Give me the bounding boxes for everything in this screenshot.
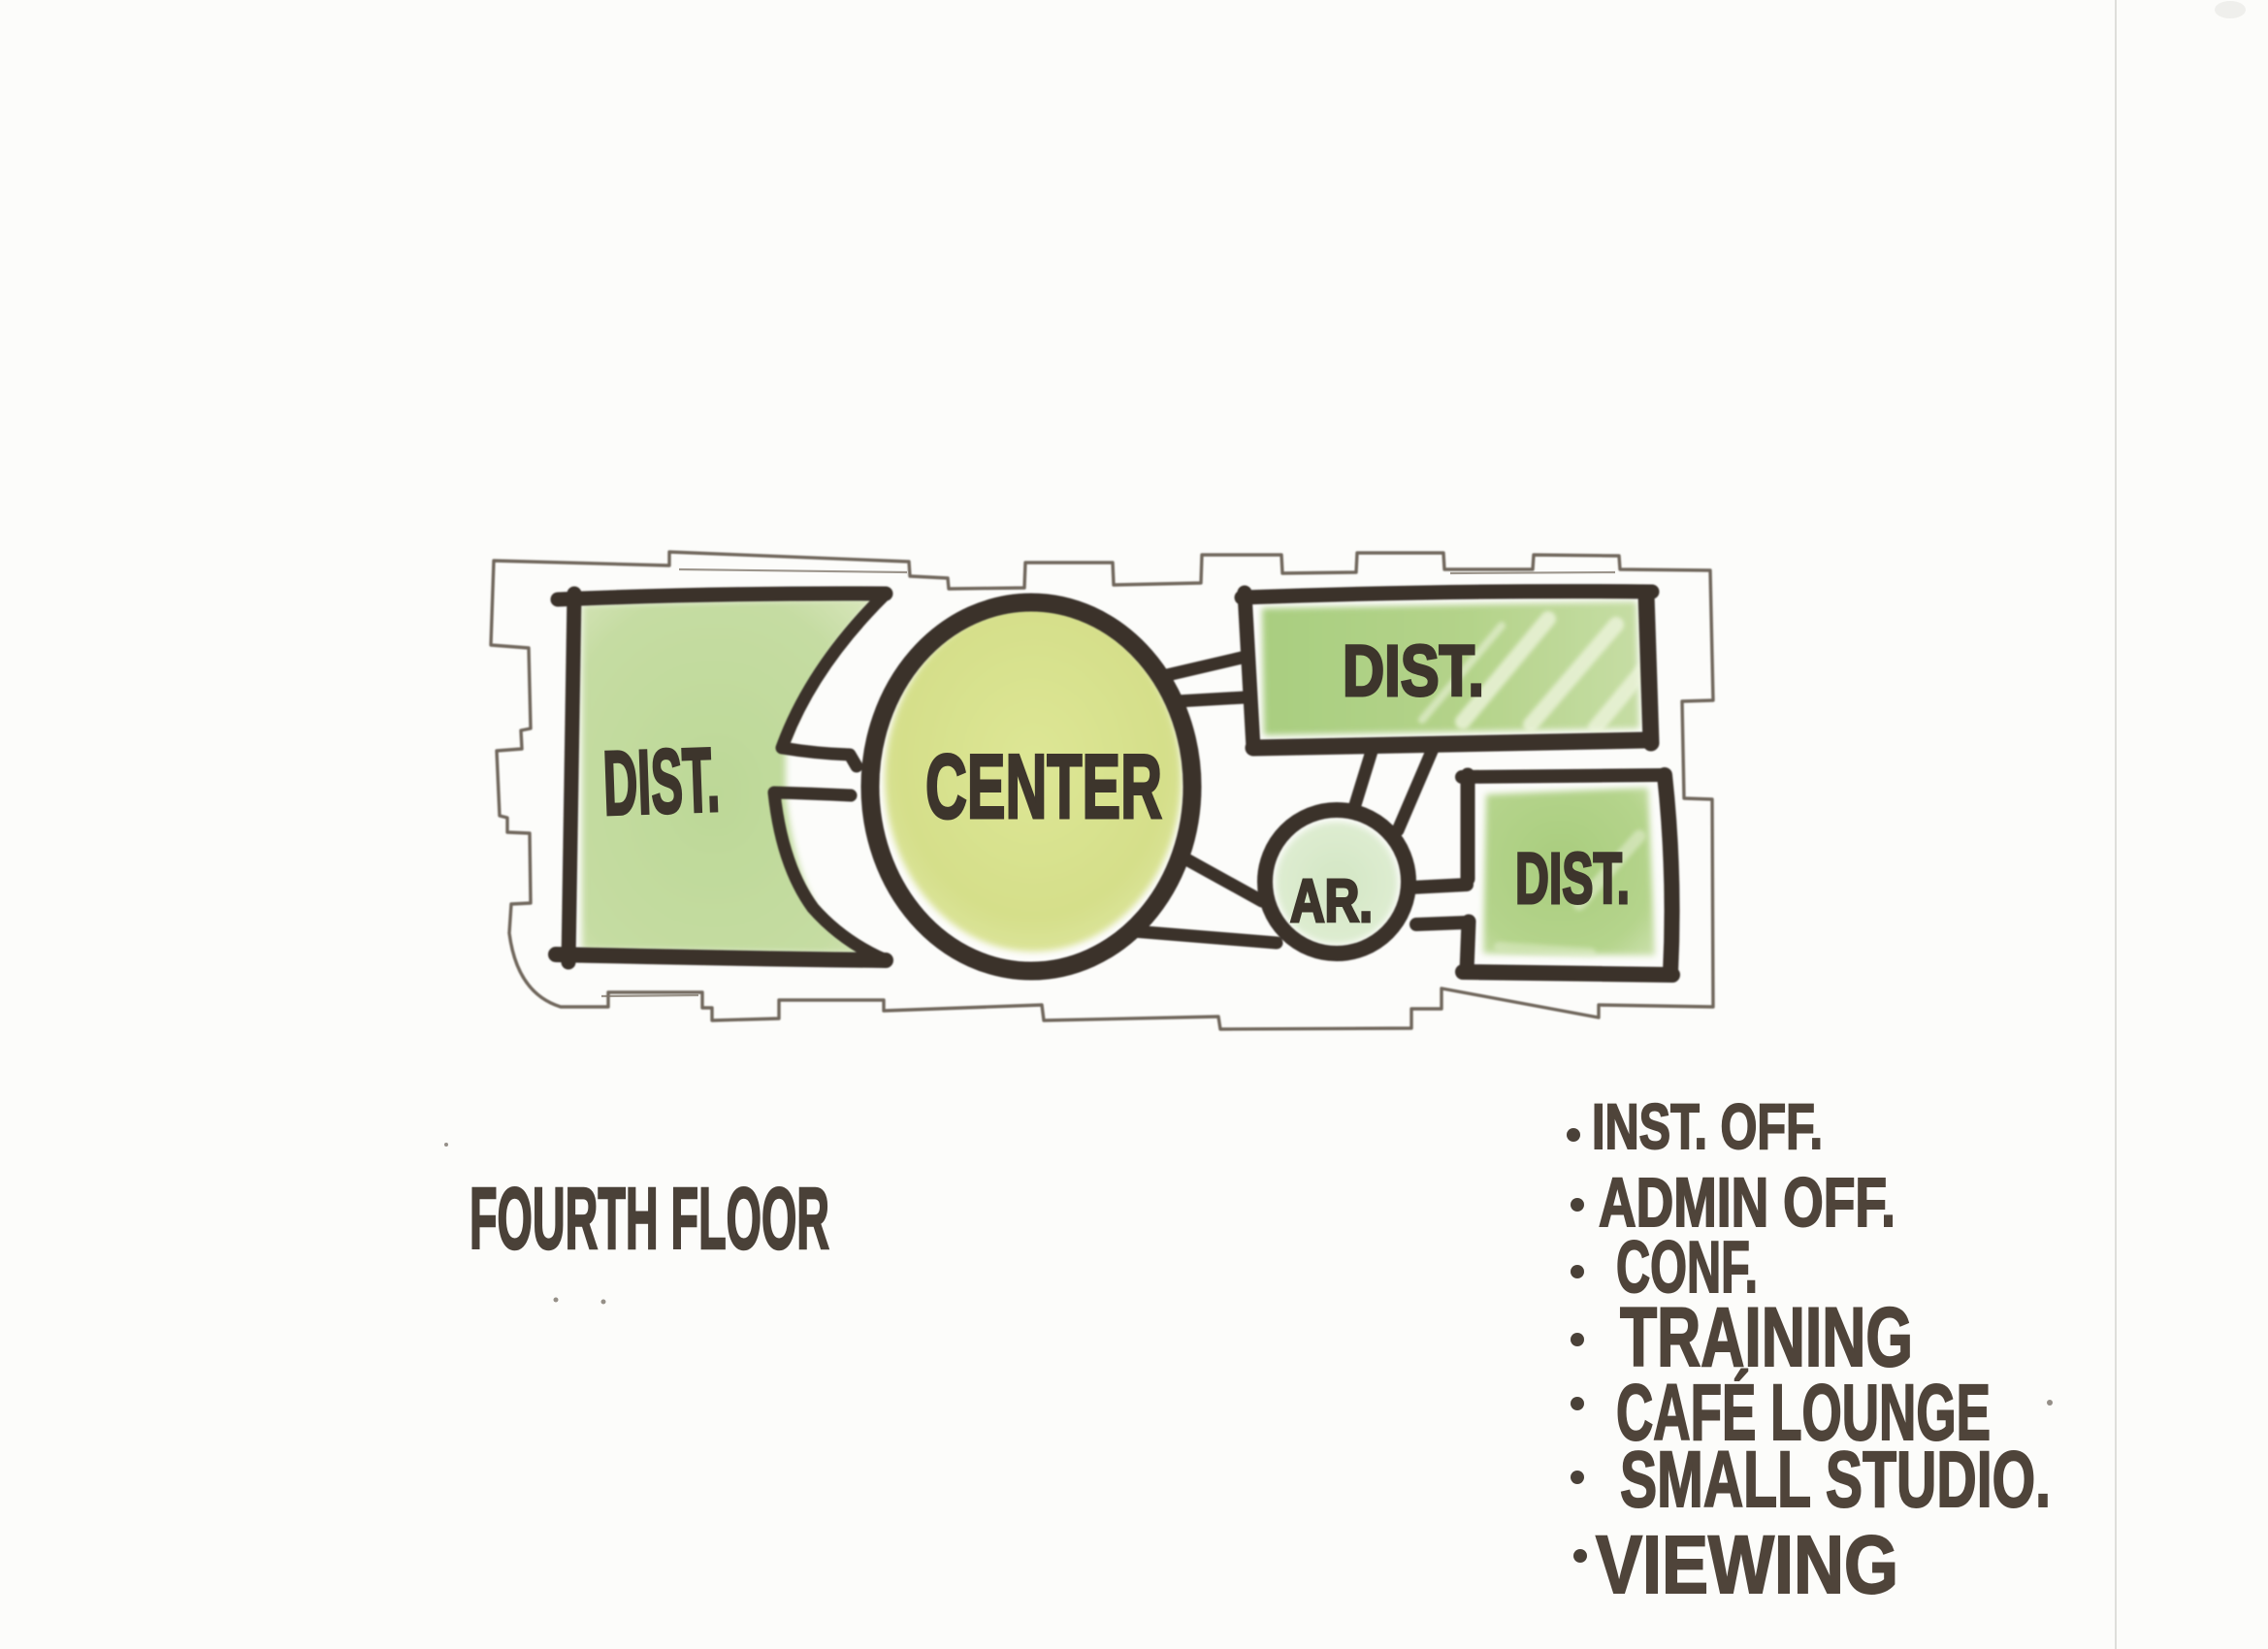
svg-text:INST. OFF.: INST. OFF. — [1592, 1090, 1823, 1162]
svg-text:DIST.: DIST. — [1515, 838, 1630, 919]
svg-text:SMALL STUDIO.: SMALL STUDIO. — [1620, 1436, 2051, 1524]
svg-text:DIST.: DIST. — [601, 728, 722, 834]
svg-text:VIEWING: VIEWING — [1596, 1519, 1898, 1610]
svg-text:AR.: AR. — [1290, 868, 1373, 935]
svg-text:FOURTH FLOOR: FOURTH FLOOR — [470, 1171, 829, 1268]
svg-text:CENTER: CENTER — [925, 735, 1162, 837]
svg-text:DIST.: DIST. — [1343, 630, 1484, 711]
